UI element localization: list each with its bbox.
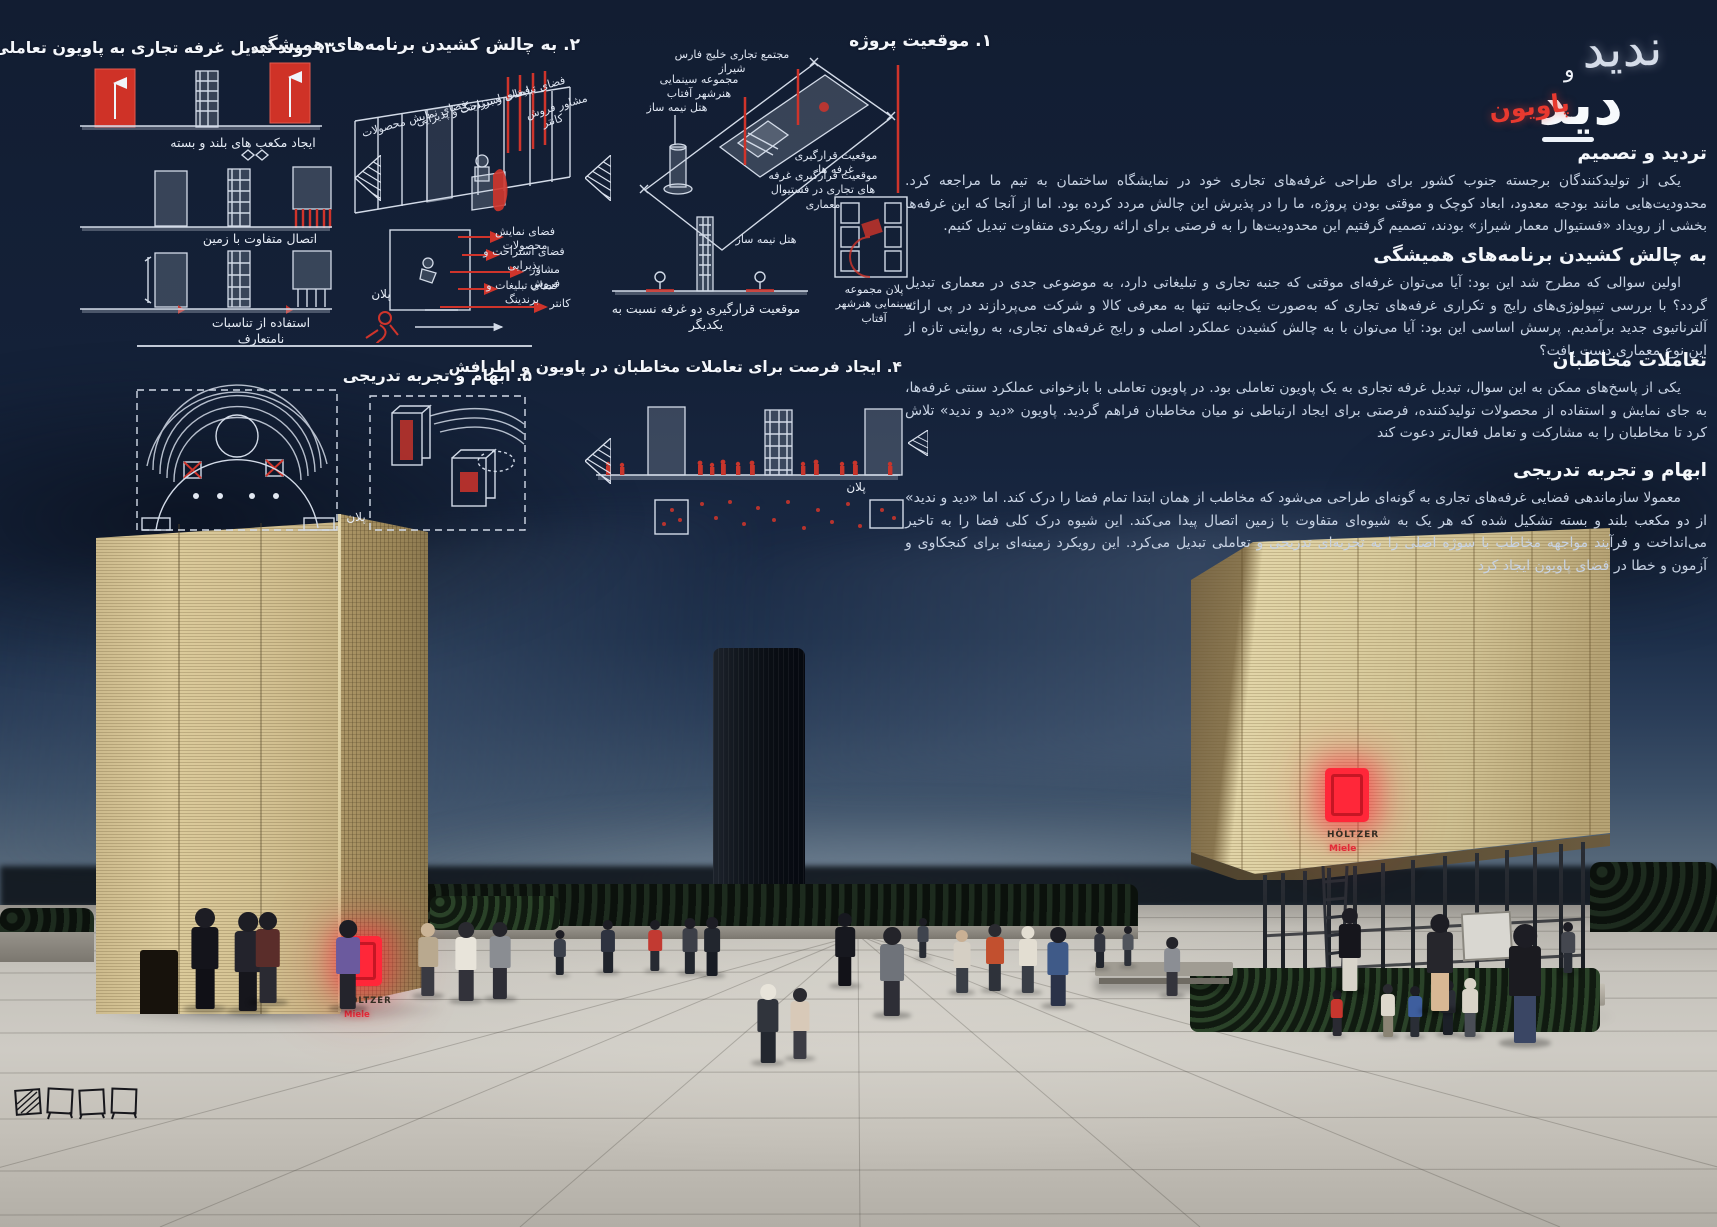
interactions-sketch bbox=[560, 352, 908, 544]
person bbox=[1162, 937, 1182, 995]
person bbox=[1379, 984, 1397, 1036]
essay-body: یکی از پاسخ‌های ممکن به این سوال، تبدیل … bbox=[905, 377, 1707, 445]
flow-arrow-icon bbox=[908, 430, 928, 456]
essay-heading: ابهام و تجربه تدریجی bbox=[905, 460, 1707, 481]
person bbox=[1121, 926, 1135, 966]
ambiguity-sketch bbox=[100, 358, 540, 533]
person bbox=[416, 923, 440, 995]
person bbox=[453, 922, 480, 1000]
person bbox=[1424, 914, 1457, 1010]
person bbox=[1505, 924, 1545, 1042]
caption-ground-connection: اتصال متفاوت با زمین bbox=[198, 231, 322, 247]
label-cinema-complex: مجموعه سینمایی هنرشهر آفتاب bbox=[648, 73, 750, 102]
label-counter: کانتر bbox=[542, 297, 578, 311]
person bbox=[1560, 922, 1577, 972]
presentation-board: HÖLTZER Miele HÖLTZER Miele ندید و دید پ… bbox=[0, 0, 1717, 1227]
diagram-site-location: ۱. موقعیت پروژه bbox=[600, 25, 1010, 375]
person bbox=[1329, 990, 1345, 1036]
essay-section: تردید و تصمیم یکی از تولیدکنندگان برجسته… bbox=[905, 143, 1707, 238]
person bbox=[788, 988, 812, 1058]
label-hotel: هتل نیمه ساز bbox=[644, 101, 710, 115]
person bbox=[877, 927, 907, 1015]
person bbox=[1460, 978, 1480, 1036]
essay-heading: تردید و تصمیم bbox=[905, 143, 1707, 164]
diagram-interactions: ۴. ایجاد فرصت برای تعاملات مخاطبان در پا… bbox=[560, 352, 908, 544]
section-divider bbox=[137, 345, 532, 347]
label-hotel-elevation: هتل نیمه ساز bbox=[733, 233, 799, 247]
flow-arrow-icon bbox=[355, 155, 381, 201]
person bbox=[552, 930, 567, 975]
label-booths-position-festival: موقعیت قرارگیری غرفه های تجاری در فستیوا… bbox=[760, 169, 886, 212]
person bbox=[188, 908, 222, 1008]
essay-section: به چالش کشیدن برنامه‌های همیشگی اولین سو… bbox=[905, 245, 1707, 363]
essay-body: معمولا سازماندهی فضایی غرفه‌های تجاری به… bbox=[905, 487, 1707, 578]
person bbox=[1017, 926, 1039, 992]
person bbox=[1093, 926, 1107, 968]
transformation-sketch bbox=[60, 25, 338, 343]
label-plan: پلان bbox=[340, 510, 372, 526]
studio-logo-icon bbox=[12, 1080, 142, 1120]
caption-tall-closed-cubes: ایجاد مکعب های بلند و بسته bbox=[168, 135, 318, 151]
person bbox=[599, 920, 617, 972]
person bbox=[755, 984, 782, 1062]
person bbox=[647, 920, 664, 970]
flow-arrow-icon bbox=[585, 438, 611, 484]
essay-section: تعاملات مخاطبان یکی از پاسخ‌های ممکن به … bbox=[905, 350, 1707, 445]
person bbox=[1045, 927, 1072, 1005]
flow-arrow-icon bbox=[585, 155, 611, 201]
person bbox=[1336, 908, 1364, 990]
label-plan: پلان bbox=[366, 287, 396, 303]
diagram-ambiguity: ۵. ابهام و تجربه تدریجی bbox=[100, 358, 540, 533]
person bbox=[253, 912, 284, 1002]
caption-unusual-proportions: استفاده از تناسبات نامتعارف bbox=[188, 315, 334, 348]
person bbox=[984, 924, 1006, 990]
person bbox=[916, 918, 930, 958]
essay-body: یکی از تولیدکنندگان برجسته جنوب کشور برا… bbox=[905, 170, 1707, 238]
diagram-transformation: ۳. روند تبدیل غرفه تجاری به پاویون تعامل… bbox=[60, 25, 338, 343]
label-plan: پلان bbox=[840, 480, 872, 496]
person bbox=[951, 930, 972, 992]
person bbox=[487, 922, 513, 998]
caption-cinema-plan: پلان مجموعه سینمایی هنرشهر آفتاب bbox=[834, 283, 914, 326]
title-underline bbox=[1542, 137, 1594, 142]
caption-two-booths: موقعیت قرارگیری دو غرفه نسبت به یکدیگر bbox=[606, 301, 806, 334]
essay-heading: تعاملات مخاطبان bbox=[905, 350, 1707, 371]
person bbox=[681, 918, 700, 973]
essay-section: ابهام و تجربه تدریجی معمولا سازماندهی فض… bbox=[905, 460, 1707, 578]
person bbox=[833, 913, 857, 985]
person bbox=[333, 920, 363, 1008]
essay-heading: به چالش کشیدن برنامه‌های همیشگی bbox=[905, 245, 1707, 266]
person bbox=[702, 917, 722, 975]
